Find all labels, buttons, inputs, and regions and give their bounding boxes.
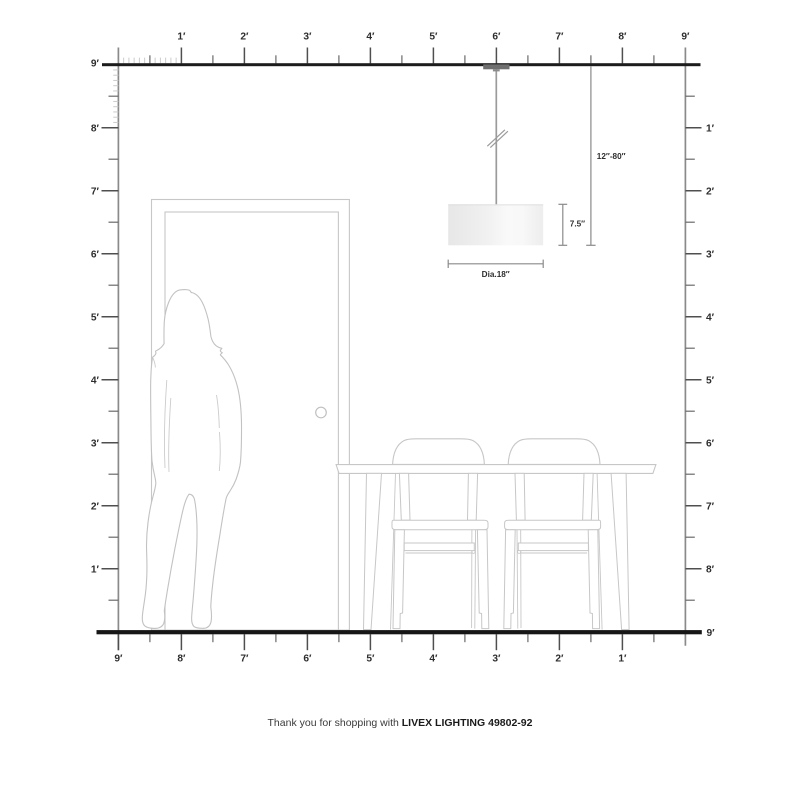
svg-text:7′: 7′ bbox=[240, 654, 249, 665]
svg-text:9′: 9′ bbox=[707, 628, 716, 639]
svg-text:4′: 4′ bbox=[706, 312, 715, 323]
svg-text:4′: 4′ bbox=[429, 654, 438, 665]
svg-text:6′: 6′ bbox=[91, 249, 100, 260]
svg-text:3′: 3′ bbox=[303, 32, 312, 43]
svg-text:9′: 9′ bbox=[91, 59, 100, 70]
svg-text:3′: 3′ bbox=[706, 249, 715, 260]
svg-text:5′: 5′ bbox=[429, 32, 438, 43]
svg-text:5′: 5′ bbox=[706, 375, 715, 386]
svg-text:Dia.18″: Dia.18″ bbox=[482, 270, 510, 279]
svg-text:5′: 5′ bbox=[91, 312, 100, 323]
svg-text:2′: 2′ bbox=[240, 32, 249, 43]
svg-text:8′: 8′ bbox=[706, 564, 715, 575]
svg-text:3′: 3′ bbox=[492, 654, 501, 665]
svg-text:7′: 7′ bbox=[706, 501, 715, 512]
svg-text:8′: 8′ bbox=[618, 32, 627, 43]
svg-text:1′: 1′ bbox=[618, 654, 627, 665]
svg-text:9′: 9′ bbox=[114, 654, 123, 665]
svg-text:4′: 4′ bbox=[366, 32, 375, 43]
svg-text:7′: 7′ bbox=[555, 32, 564, 43]
svg-text:Thank you for shopping with LI: Thank you for shopping with LIVEX LIGHTI… bbox=[268, 717, 533, 729]
svg-text:3′: 3′ bbox=[91, 438, 100, 449]
svg-text:5′: 5′ bbox=[366, 654, 375, 665]
svg-text:1′: 1′ bbox=[91, 564, 100, 575]
svg-text:1′: 1′ bbox=[706, 123, 715, 134]
svg-text:4′: 4′ bbox=[91, 375, 100, 386]
svg-text:2′: 2′ bbox=[91, 501, 100, 512]
svg-text:6′: 6′ bbox=[706, 438, 715, 449]
svg-text:6′: 6′ bbox=[303, 654, 312, 665]
svg-text:7.5″: 7.5″ bbox=[570, 220, 585, 229]
svg-text:9′: 9′ bbox=[681, 32, 690, 43]
svg-text:7′: 7′ bbox=[91, 186, 100, 197]
svg-text:12″-80″: 12″-80″ bbox=[597, 152, 626, 161]
svg-text:6′: 6′ bbox=[492, 32, 501, 43]
svg-text:2′: 2′ bbox=[706, 186, 715, 197]
svg-text:2′: 2′ bbox=[555, 654, 564, 665]
svg-text:8′: 8′ bbox=[91, 123, 100, 134]
svg-text:1′: 1′ bbox=[177, 32, 186, 43]
svg-text:8′: 8′ bbox=[177, 654, 186, 665]
